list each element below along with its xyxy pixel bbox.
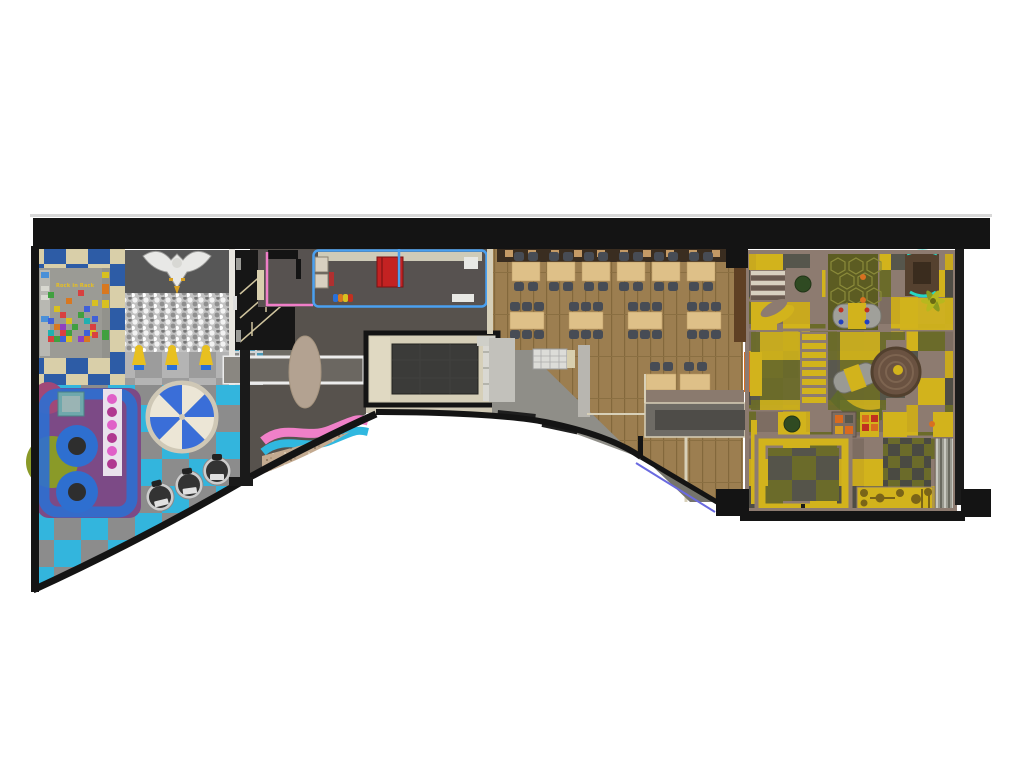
step-stairs [800, 332, 828, 410]
indoor-playground-floor-plan: Rock in Rack [0, 0, 1024, 768]
climbing-wall-room [38, 268, 110, 358]
carousel [148, 383, 216, 451]
ball-pit [125, 293, 229, 353]
right-wall [955, 249, 964, 505]
knob-icon [860, 297, 866, 303]
toddler-soft-play [26, 382, 141, 518]
stage-room [366, 333, 498, 405]
pink-ball-column [103, 389, 122, 476]
roller-slide [935, 438, 955, 512]
floor-plan-svg [0, 0, 1024, 768]
stairs-entry [750, 270, 786, 302]
small-checker-area [883, 438, 931, 488]
right-wall-block [961, 489, 991, 517]
green-dot-panel [786, 268, 822, 302]
toddler-slide [905, 250, 939, 296]
bottom-wall-right [740, 511, 965, 521]
crawl-tube [833, 303, 881, 329]
top-wall [33, 218, 990, 249]
wood-door [734, 268, 746, 342]
projection-screen [392, 344, 478, 394]
party-room-pink [257, 250, 313, 307]
climb-wall-sign: Rock in Rack [56, 283, 94, 289]
left-wall [31, 246, 39, 592]
top-line [30, 214, 992, 217]
ball-pit-room [125, 250, 229, 385]
mid-partition-wall [240, 350, 250, 485]
dining-divider-wall [487, 248, 493, 334]
party-room-blue [313, 248, 487, 307]
oval-rug [289, 336, 321, 408]
knob-icon [860, 274, 866, 280]
trampoline-area [757, 437, 850, 512]
